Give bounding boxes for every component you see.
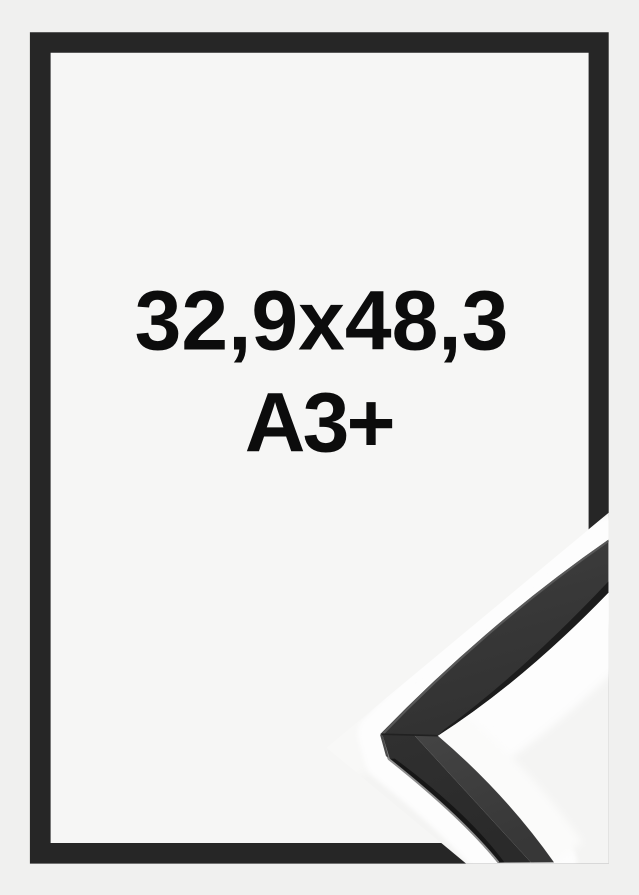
svg-text:A3+: A3+	[245, 376, 393, 470]
svg-text:32,9x48,3: 32,9x48,3	[135, 274, 509, 368]
